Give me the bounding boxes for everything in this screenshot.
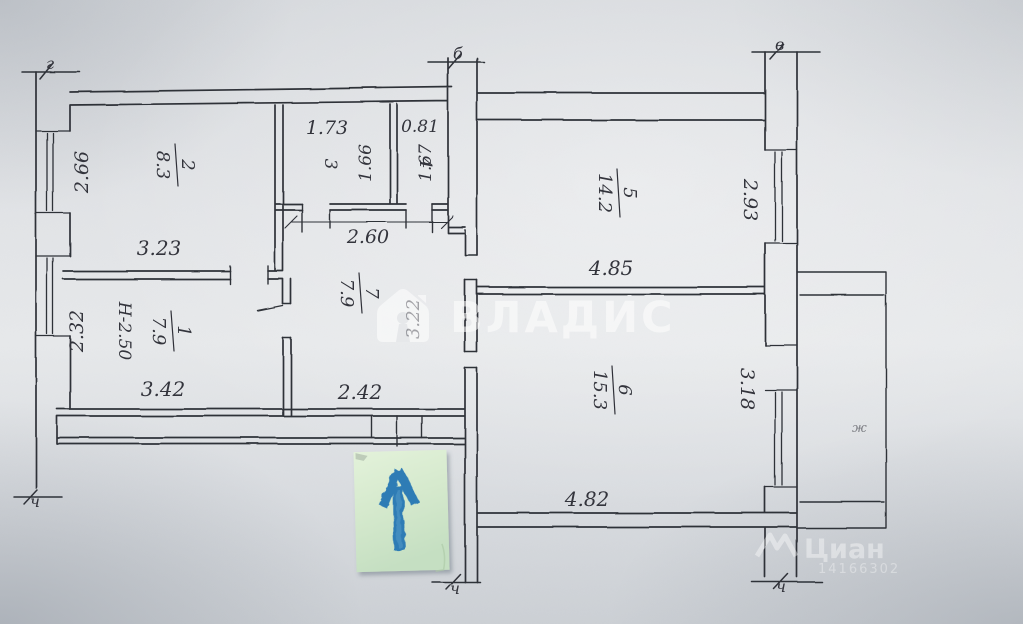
axis-mark-bottom-left: ч	[30, 492, 40, 511]
axis-mark-top-middle: б	[453, 44, 463, 63]
cian-listing-id: 14166302	[818, 562, 900, 577]
dim-room3-depth: 1.66	[356, 144, 376, 182]
room1-height-note: Н-2.50	[114, 301, 134, 361]
room7-area: 7.9	[336, 279, 357, 308]
room2-area: 8.3	[152, 151, 173, 180]
axis-mark-top-left: г	[46, 54, 54, 73]
dim-room5-length: 4.85	[588, 256, 634, 280]
watermark-vladis: ВЛАДИС	[377, 289, 676, 343]
axis-mark-bottom-middle: ч	[450, 579, 460, 598]
room1-area: 7.9	[148, 317, 169, 346]
dim-room5-width: 2.93	[739, 178, 761, 221]
room4-number: 4	[415, 157, 435, 169]
vladis-watermark-text: ВЛАДИС	[450, 293, 676, 343]
room1-number: 1	[173, 325, 194, 336]
dim-room4-width: 0.81	[401, 117, 439, 137]
room3-number: 3	[320, 159, 340, 170]
room5-area: 14.2	[594, 173, 615, 213]
dim-room6-length: 4.82	[564, 487, 610, 511]
axis-mark-bottom-right: ч	[776, 577, 786, 596]
balcony-mark: ж	[852, 421, 867, 436]
room6-number: 6	[614, 384, 635, 395]
room2-number: 2	[177, 158, 198, 170]
axis-mark-top-right: в	[775, 35, 784, 54]
dim-room3-width: 1.73	[306, 117, 348, 139]
cian-watermark-text: Циан	[804, 534, 885, 565]
dim-hall-entry: 2.42	[337, 380, 383, 404]
sticky-note	[353, 450, 449, 573]
dim-hall-width: 2.60	[346, 226, 389, 248]
room7-number: 7	[361, 287, 382, 299]
dim-room2-width: 2.66	[71, 151, 93, 194]
floorplan-photo: 3.23 3.42 1.73 0.81 2.60 2.42 4.85 4.82 …	[0, 0, 1023, 624]
dim-room6-width: 3.18	[736, 368, 758, 410]
dim-room1-width: 2.32	[66, 310, 88, 353]
dim-room2-length: 3.23	[137, 236, 182, 260]
room5-number: 5	[619, 187, 640, 198]
floorplan-drawing: 3.23 3.42 1.73 0.81 2.60 2.42 4.85 4.82 …	[0, 0, 1023, 624]
dim-room1-length: 3.42	[141, 377, 186, 401]
room6-area: 15.3	[589, 370, 610, 410]
